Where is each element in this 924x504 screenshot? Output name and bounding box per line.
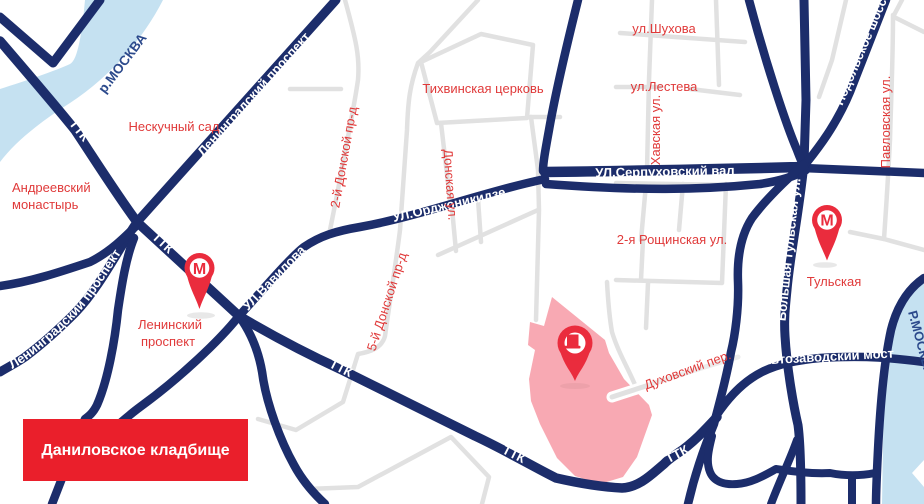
svg-text:Павловская ул.: Павловская ул. — [878, 76, 893, 169]
svg-text:М: М — [820, 213, 833, 230]
svg-text:УЛ.Серпуховский вал: УЛ.Серпуховский вал — [595, 163, 735, 180]
svg-text:ул.Шухова: ул.Шухова — [632, 21, 696, 36]
svg-text:Тульская: Тульская — [807, 274, 862, 289]
svg-text:М: М — [193, 261, 206, 278]
svg-text:ул.Лестева: ул.Лестева — [631, 79, 698, 94]
svg-text:Андреевский: Андреевский — [12, 180, 91, 195]
svg-text:Нескучный сад: Нескучный сад — [129, 119, 220, 134]
svg-text:Даниловское кладбище: Даниловское кладбище — [41, 442, 229, 459]
svg-text:Ленинский: Ленинский — [138, 317, 202, 332]
svg-text:2-я Рощинская ул.: 2-я Рощинская ул. — [617, 232, 727, 247]
svg-text:Хавская ул.: Хавская ул. — [648, 95, 663, 165]
svg-text:Тихвинская церковь: Тихвинская церковь — [422, 81, 544, 96]
svg-text:проспект: проспект — [141, 334, 195, 349]
svg-text:монастырь: монастырь — [12, 197, 79, 212]
